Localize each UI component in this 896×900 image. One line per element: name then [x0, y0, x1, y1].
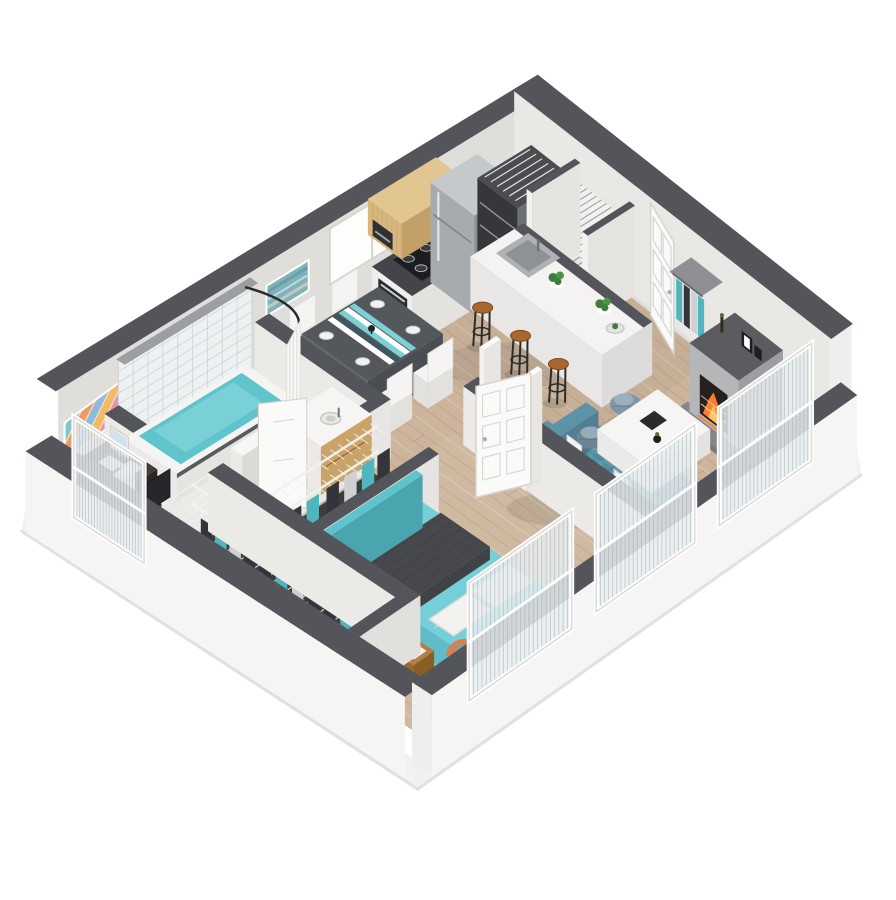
bedroom-door	[476, 373, 531, 497]
floorplan-canvas	[0, 0, 896, 900]
floorplan-3d-render	[0, 0, 896, 900]
